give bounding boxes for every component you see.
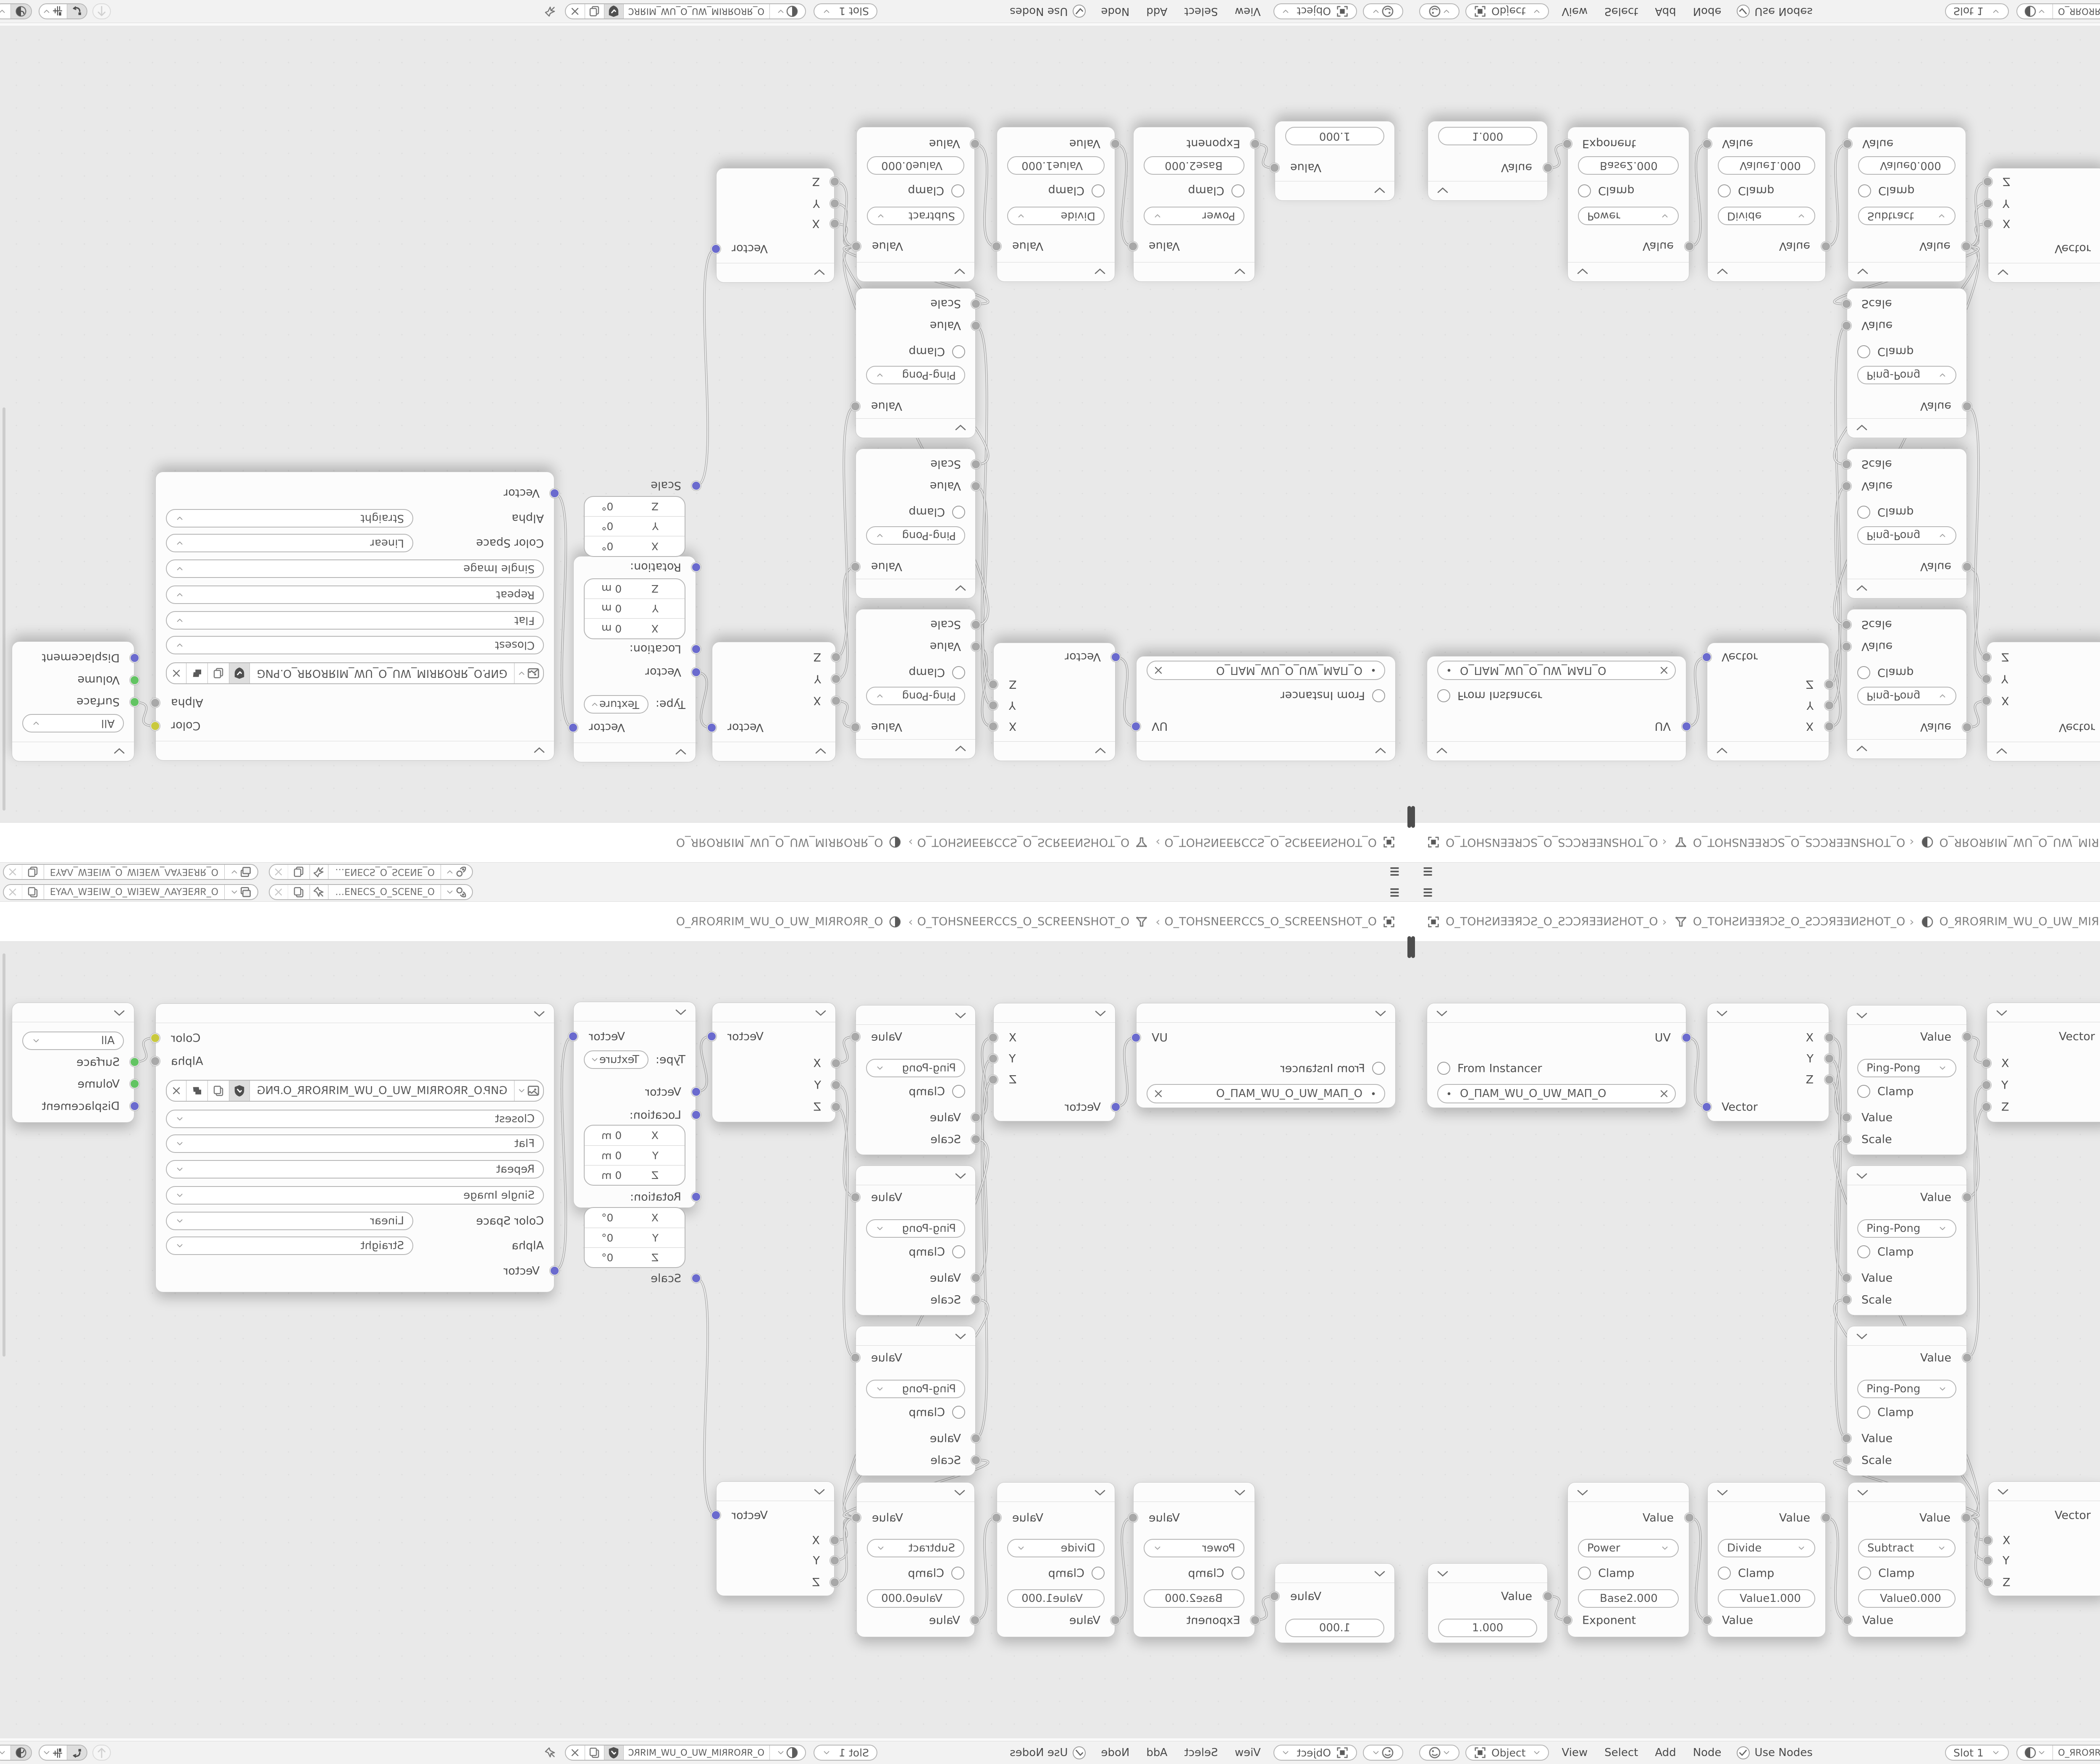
number-field[interactable]: 1.000: [1285, 127, 1384, 145]
x-input-socket[interactable]: [1982, 1058, 1991, 1068]
snap-parent-button[interactable]: [92, 1745, 111, 1761]
scrollbar-nub[interactable]: [1411, 936, 1415, 958]
node-header[interactable]: [1707, 741, 1829, 761]
math-power-node[interactable]: ValuePowerClampBase2.000Exponent: [1567, 1482, 1689, 1637]
fake-user-button[interactable]: [229, 1081, 250, 1101]
x-input-socket[interactable]: [830, 1536, 840, 1545]
checkbox-clamp[interactable]: [952, 345, 965, 358]
collapse-chevron-icon[interactable]: [954, 422, 967, 431]
material-name[interactable]: O_ЯROЯRIM_WU_O_UW_MIЯROЯR_O: [624, 1746, 770, 1760]
divide-dropdown[interactable]: Divide: [1007, 207, 1105, 225]
breadcrumb-item-2[interactable]: O_ЯROЯRIM_WU_O_UW_MIЯROЯR_O: [676, 836, 883, 849]
vector-input-socket[interactable]: [691, 1087, 701, 1097]
ping-pong-dropdown[interactable]: Ping-Pong: [1857, 366, 1956, 384]
menu-select[interactable]: Select: [1184, 1746, 1218, 1759]
collapse-chevron-icon[interactable]: [1373, 1570, 1386, 1579]
vector-fields[interactable]: X0°Y0°Z0°: [584, 496, 685, 557]
menu-view[interactable]: View: [1235, 5, 1261, 18]
clear-button[interactable]: [1653, 661, 1675, 679]
scale-input-socket[interactable]: [971, 1455, 981, 1465]
collapse-chevron-icon[interactable]: [954, 1172, 967, 1181]
value-output-socket[interactable]: [850, 1353, 860, 1362]
node-header[interactable]: [1847, 739, 1966, 759]
vector-field-row[interactable]: Z0 m: [585, 1165, 685, 1185]
z-input-socket[interactable]: [1983, 177, 1992, 186]
ping-pong-dropdown[interactable]: Ping-Pong: [1857, 1059, 1956, 1077]
value-input-socket[interactable]: [971, 481, 981, 491]
exponent-input-socket[interactable]: [1562, 1615, 1572, 1625]
pin-icon[interactable]: [544, 5, 556, 18]
viewlayer-name[interactable]: O_ЯRƎEYAΛ_WƎEIW_O_WIƎEW_ΛAYƎER_O: [44, 865, 225, 879]
hamburger-icon[interactable]: [1387, 864, 1401, 879]
vector-input-socket[interactable]: [1111, 652, 1121, 662]
colorspace-dropdown[interactable]: Linear: [166, 1212, 413, 1230]
ping-pong-dropdown[interactable]: Ping-Pong: [866, 687, 965, 705]
value-input-socket[interactable]: [970, 139, 980, 149]
node-header[interactable]: [1275, 181, 1394, 200]
value-output-socket[interactable]: [850, 1192, 860, 1202]
use-nodes-check-circle[interactable]: [1737, 5, 1750, 18]
ping-pong-dropdown[interactable]: Ping-Pong: [866, 1219, 965, 1238]
x-input-socket[interactable]: [830, 219, 840, 228]
collapse-chevron-icon[interactable]: [1995, 745, 2008, 755]
scene-copy-button[interactable]: [288, 885, 310, 899]
z-input-socket[interactable]: [1982, 1102, 1991, 1112]
volume-input-socket[interactable]: [130, 675, 139, 685]
snap-toggle-button[interactable]: [67, 4, 87, 18]
math-power-node[interactable]: ValuePowerClampBase2.000Exponent: [1133, 1482, 1255, 1637]
scene-pin-button[interactable]: [310, 885, 328, 899]
math-subtract-node[interactable]: ValueSubtractClampValue0.000Value: [856, 127, 975, 282]
type-dropdown[interactable]: Texture: [584, 695, 648, 714]
editor-type-button[interactable]: [1419, 1745, 1459, 1761]
flat-dropdown[interactable]: Flat: [166, 611, 544, 630]
value-output-socket[interactable]: [992, 1513, 1001, 1522]
material-datablock[interactable]: O_ЯROЯRIM_WU_O_UW_MIЯROЯR_O: [565, 1745, 806, 1761]
collapse-chevron-icon[interactable]: [954, 743, 967, 752]
use-nodes-checkbox[interactable]: Use Nodes: [1737, 5, 1813, 18]
closest-dropdown[interactable]: Closest: [166, 1110, 544, 1128]
vector-fields[interactable]: X0 mY0 mZ0 m: [584, 1125, 685, 1186]
math-ping-pong-1-node[interactable]: ValuePing-PongClampValueScale: [1847, 609, 1967, 759]
collapse-chevron-icon[interactable]: [1997, 1488, 2009, 1497]
image-datablock-field[interactable]: GИP.O_ЯROЯRIM_WU_O_UW_MIЯROЯR_O.PNG: [166, 662, 544, 684]
value-input-socket[interactable]: [1842, 481, 1851, 491]
slot-dropdown[interactable]: Slot 1: [814, 1745, 877, 1761]
snap-toggle-button[interactable]: [67, 1746, 87, 1760]
node-header[interactable]: [856, 1005, 975, 1025]
material-icon-button[interactable]: [770, 1746, 805, 1760]
scene-copy-button[interactable]: [288, 865, 310, 879]
editor-type-button[interactable]: [1419, 3, 1459, 19]
number-field[interactable]: Value1.000: [1007, 156, 1105, 175]
separate-xyz-node[interactable]: XYZVector: [993, 643, 1116, 761]
collapse-chevron-icon[interactable]: [1716, 1010, 1728, 1019]
node-header[interactable]: [857, 1483, 974, 1502]
vector-output-socket[interactable]: [568, 723, 578, 732]
divide-dropdown[interactable]: Divide: [1718, 207, 1815, 225]
math-subtract-node[interactable]: ValueSubtractClampValue0.000Value: [856, 1482, 975, 1637]
node-header[interactable]: [12, 742, 134, 761]
mode-dropdown[interactable]: Object: [1273, 1745, 1357, 1761]
checkbox-clamp[interactable]: [1858, 1567, 1871, 1580]
image-browse-button[interactable]: [514, 663, 543, 683]
checkbox-clamp[interactable]: [951, 184, 964, 197]
scene-icon-button[interactable]: [441, 885, 472, 899]
material-fake-user-button[interactable]: [604, 1746, 624, 1760]
collapse-chevron-icon[interactable]: [813, 267, 826, 276]
node-header[interactable]: [156, 741, 554, 760]
single-image-dropdown[interactable]: Single Image: [166, 1186, 544, 1205]
snap-group[interactable]: [39, 1745, 87, 1761]
value-output-socket[interactable]: [1543, 1591, 1553, 1601]
collapse-chevron-icon[interactable]: [1856, 583, 1868, 592]
checkbox-clamp[interactable]: [1578, 184, 1591, 197]
vector-input-socket[interactable]: [691, 667, 701, 677]
math-ping-pong-3-node[interactable]: ValuePing-PongClampValueScale: [856, 1326, 976, 1476]
material-name[interactable]: O_ЯROЯRIM_WU_O_UW_MIЯROЯR_O: [624, 4, 770, 18]
collapse-chevron-icon[interactable]: [533, 745, 546, 754]
collapse-chevron-icon[interactable]: [954, 583, 967, 592]
surface-input-socket[interactable]: [130, 697, 139, 707]
material-datablock[interactable]: O_ЯROЯRIM_WU_O_UW_MIЯROЯR_O: [565, 3, 806, 19]
scene-selector[interactable]: O_ƎИƎƆƧ_O_ƧƆƎИƎ…: [269, 884, 473, 900]
collapse-chevron-icon[interactable]: [953, 1489, 966, 1498]
z-input-socket[interactable]: [831, 1102, 841, 1112]
value-output-socket[interactable]: [1962, 1032, 1972, 1042]
number-field[interactable]: Value1.000: [1718, 156, 1815, 175]
node-header[interactable]: [1848, 1483, 1966, 1502]
y-input-socket[interactable]: [830, 1556, 840, 1565]
vector-field-row[interactable]: X0°: [585, 1208, 685, 1228]
material-name[interactable]: O_ЯROЯRIM_WU_O_UW_MIЯROЯR_O: [2053, 1746, 2100, 1760]
scale-input-socket[interactable]: [971, 1134, 981, 1144]
collapse-chevron-icon[interactable]: [1234, 266, 1246, 275]
menu-add[interactable]: Add: [1146, 5, 1167, 18]
collapse-chevron-icon[interactable]: [1716, 266, 1729, 275]
rotation-input-socket[interactable]: [691, 1192, 701, 1202]
math-ping-pong-2-node[interactable]: ValuePing-PongClampValueScale: [1847, 449, 1967, 598]
combine-xyz-1-node[interactable]: VectorXYZ: [1987, 642, 2100, 761]
viewlayer-pill[interactable]: O_ЯRƎEYAΛ_WƎEIW_O_WIƎEW_ΛAYƎER_O: [3, 864, 258, 880]
node-header[interactable]: [1987, 1003, 2100, 1022]
uv-map-name[interactable]: O_ПAM_WU_O_UW_MAП_O: [1169, 1085, 1362, 1102]
ping-pong-dropdown[interactable]: Ping-Pong: [866, 1380, 965, 1398]
breadcrumb-item-1[interactable]: O_TOHƧИƎƎЯƆƧ_O_ƧƆƆЯƎƎИƧHOT_O: [917, 915, 1130, 928]
hamburger-icon[interactable]: [1387, 864, 1401, 879]
x-input-socket[interactable]: [831, 1058, 841, 1068]
value-output-socket[interactable]: [850, 562, 860, 572]
menu-add[interactable]: Add: [1655, 1746, 1676, 1759]
node-header[interactable]: [856, 1166, 975, 1185]
collapse-chevron-icon[interactable]: [533, 1010, 546, 1019]
collapse-chevron-icon[interactable]: [1856, 1172, 1868, 1181]
menu-add[interactable]: Add: [1655, 5, 1676, 18]
x-input-socket[interactable]: [1983, 219, 1992, 228]
canvas-scrollbar[interactable]: [3, 407, 5, 811]
mode-dropdown[interactable]: Object: [1273, 3, 1357, 19]
scene-pill[interactable]: O_ƎИƎƆƧ_O_ƧƆƎИƎ…: [269, 864, 473, 880]
vector-output-socket[interactable]: [711, 244, 721, 254]
value-output-socket[interactable]: [1685, 1513, 1694, 1522]
menu-view[interactable]: View: [1562, 5, 1588, 18]
exponent-input-socket[interactable]: [1562, 139, 1572, 149]
subtract-dropdown[interactable]: Subtract: [867, 1539, 964, 1557]
unlink-button[interactable]: [167, 663, 186, 683]
use-nodes-checkbox[interactable]: Use Nodes: [1010, 1746, 1086, 1759]
uv-map-name[interactable]: O_ПAM_WU_O_UW_MAП_O: [1460, 661, 1653, 679]
collapse-chevron-icon[interactable]: [1436, 745, 1448, 754]
canvas-scrollbar[interactable]: [3, 953, 5, 1357]
breadcrumb-item-0[interactable]: O_TOHƧИƎƎЯƆƧ_O_ƧƆƆЯƎƎИƧHOT_O: [1164, 915, 1377, 928]
value-input-socket[interactable]: [1702, 139, 1712, 149]
material-unlink-button[interactable]: [566, 4, 585, 18]
alpha-dropdown[interactable]: Straight: [166, 509, 413, 528]
value-output-socket[interactable]: [1962, 402, 1972, 411]
value-node[interactable]: Value1.000: [1428, 1563, 1548, 1643]
collapse-chevron-icon[interactable]: [954, 1012, 967, 1021]
checkbox-clamp[interactable]: [1092, 1567, 1105, 1580]
collapse-chevron-icon[interactable]: [1856, 1333, 1868, 1342]
hamburger-icon[interactable]: [1387, 885, 1401, 900]
node-header[interactable]: [857, 262, 974, 281]
ping-pong-dropdown[interactable]: Ping-Pong: [866, 1059, 965, 1077]
z-output-socket[interactable]: [1824, 680, 1834, 689]
collapse-chevron-icon[interactable]: [1094, 266, 1106, 275]
material-unlink-button[interactable]: [566, 1746, 585, 1760]
z-output-socket[interactable]: [988, 1075, 998, 1084]
subtract-dropdown[interactable]: Subtract: [867, 207, 964, 225]
repeat-dropdown[interactable]: Repeat: [166, 1160, 544, 1179]
breadcrumb-item-1[interactable]: O_TOHƧИƎƎЯƆƧ_O_ƧƆƆЯƎƎИƧHOT_O: [917, 836, 1130, 849]
slot-dropdown[interactable]: Slot 1: [1945, 3, 2009, 19]
scene-pill[interactable]: O_ƎИƎƆƧ_O_ƧƆƎИƎ…: [269, 884, 473, 900]
checkbox-clamp[interactable]: [952, 666, 965, 679]
breadcrumb-item-2[interactable]: O_ЯROЯRIM_WU_O_UW_MIЯROЯR_O: [1939, 915, 2100, 928]
math-ping-pong-3-node[interactable]: ValuePing-PongClampValueScale: [856, 288, 976, 438]
collapse-chevron-icon[interactable]: [113, 745, 126, 755]
checkbox-clamp[interactable]: [1231, 184, 1244, 197]
snap-mode-dropdown[interactable]: [39, 1746, 67, 1760]
overlay-dropdown[interactable]: [0, 1746, 11, 1760]
pin-icon[interactable]: [544, 1746, 556, 1759]
menu-node[interactable]: Node: [1101, 5, 1129, 18]
scale-input-socket[interactable]: [1842, 620, 1851, 630]
y-input-socket[interactable]: [830, 199, 840, 208]
power-dropdown[interactable]: Power: [1144, 1539, 1244, 1557]
checkbox-clamp[interactable]: [1857, 1406, 1870, 1419]
checkbox-clamp[interactable]: [1857, 345, 1870, 358]
clear-button[interactable]: [1147, 661, 1169, 679]
y-input-socket[interactable]: [831, 1080, 841, 1090]
value-input-socket[interactable]: [971, 1273, 981, 1283]
number-field[interactable]: Value0.000: [867, 1589, 964, 1608]
use-nodes-checkbox[interactable]: Use Nodes: [1737, 1746, 1813, 1759]
math-ping-pong-3-node[interactable]: ValuePing-PongClampValueScale: [1847, 288, 1967, 438]
hamburger-icon[interactable]: [1421, 864, 1436, 879]
separate-xyz-node[interactable]: XYZVector: [1707, 643, 1829, 761]
material-icon-button[interactable]: [770, 4, 805, 18]
checkbox-clamp[interactable]: [1718, 1567, 1731, 1580]
hamburger-icon[interactable]: [1421, 885, 1436, 900]
combine-xyz-2-node[interactable]: VectorXYZ: [716, 1481, 835, 1596]
value-output-socket[interactable]: [1270, 1591, 1279, 1601]
mapping-node[interactable]: VectorType:TextureVectorLocation:X0 mY0 …: [573, 556, 696, 762]
hamburger-icon[interactable]: [1421, 864, 1436, 879]
material-name[interactable]: O_ЯROЯRIM_WU_O_UW_MIЯROЯR_O: [2053, 4, 2100, 18]
math-subtract-node[interactable]: ValueSubtractClampValue0.000Value: [1848, 1482, 1966, 1637]
value-input-socket[interactable]: [1842, 1273, 1851, 1283]
material-fake-user-button[interactable]: [604, 4, 624, 18]
vector-field-row[interactable]: X0 m: [585, 619, 685, 638]
collapse-chevron-icon[interactable]: [1094, 1010, 1107, 1019]
node-header[interactable]: [1847, 1005, 1966, 1025]
node-header[interactable]: [717, 263, 834, 282]
checkbox-clamp[interactable]: [1231, 1567, 1244, 1580]
combine-xyz-1-node[interactable]: VectorXYZ: [1987, 1003, 2100, 1122]
image-name[interactable]: GИP.O_ЯROЯRIM_WU_O_UW_MIЯROЯR_O.PNG: [250, 1081, 515, 1101]
number-field[interactable]: Value1.000: [1007, 1589, 1105, 1608]
checkbox-clamp[interactable]: [952, 1406, 965, 1419]
node-header[interactable]: [574, 1002, 696, 1021]
checkbox-clamp[interactable]: [952, 1085, 965, 1098]
menu-select[interactable]: Select: [1604, 1746, 1638, 1759]
number-field[interactable]: Base2.000: [1578, 156, 1679, 175]
unlink-button[interactable]: [167, 1081, 186, 1101]
value-input-socket[interactable]: [971, 321, 981, 331]
uv-output-socket[interactable]: [1682, 1033, 1691, 1042]
uv-map-field[interactable]: O_ПAM_WU_O_UW_MAП_O: [1437, 661, 1676, 680]
scale-input-socket[interactable]: [1842, 299, 1851, 309]
mapping-node[interactable]: VectorType:TextureVectorLocation:X0 mY0 …: [573, 1002, 696, 1208]
displacement-input-socket[interactable]: [130, 653, 139, 663]
vector-input-socket[interactable]: [1111, 1102, 1121, 1112]
x-output-socket[interactable]: [1824, 722, 1834, 731]
vector-field-row[interactable]: X0°: [585, 536, 685, 556]
collapse-chevron-icon[interactable]: [675, 1008, 687, 1018]
collapse-chevron-icon[interactable]: [1995, 1009, 2008, 1018]
collapse-chevron-icon[interactable]: [1856, 743, 1868, 752]
overlay-toggle-button[interactable]: [11, 1746, 31, 1760]
x-input-socket[interactable]: [1982, 696, 1991, 706]
scale-input-socket[interactable]: [971, 620, 981, 630]
vector-input-socket[interactable]: [1702, 1102, 1711, 1112]
clear-button[interactable]: [1147, 1085, 1169, 1102]
node-header[interactable]: [1427, 1003, 1686, 1023]
breadcrumb-item-2[interactable]: O_ЯROЯRIM_WU_O_UW_MIЯROЯR_O: [676, 915, 883, 928]
value-output-socket[interactable]: [1821, 241, 1831, 251]
scale-input-socket[interactable]: [971, 1295, 981, 1305]
y-output-socket[interactable]: [988, 701, 998, 710]
vector-field-row[interactable]: Y0°: [585, 517, 685, 536]
node-header[interactable]: [997, 1483, 1115, 1502]
viewlayer-unlink-button[interactable]: [4, 885, 22, 899]
z-input-socket[interactable]: [831, 652, 841, 662]
x-output-socket[interactable]: [988, 722, 998, 731]
value-input-socket[interactable]: [1842, 1113, 1851, 1122]
single-image-dropdown[interactable]: Single Image: [166, 559, 544, 578]
node-header[interactable]: [1708, 1483, 1825, 1502]
combine-xyz-2-node[interactable]: VectorXYZ: [1988, 168, 2100, 283]
use-nodes-checkbox[interactable]: Use Nodes: [1010, 5, 1086, 18]
collapse-chevron-icon[interactable]: [1094, 745, 1107, 754]
x-output-socket[interactable]: [988, 1033, 998, 1042]
vector-field-row[interactable]: Y0°: [585, 1228, 685, 1247]
flat-dropdown[interactable]: Flat: [166, 1134, 544, 1153]
math-divide-node[interactable]: ValueDivideClampValue1.000Value: [1707, 1482, 1826, 1637]
value-input-socket[interactable]: [1842, 1433, 1851, 1443]
copy-button[interactable]: [208, 663, 229, 683]
value-input-socket[interactable]: [1843, 1615, 1852, 1625]
breadcrumb-item-1[interactable]: O_TOHƧИƎƎЯƆƧ_O_ƧƆƆЯƎƎИƧHOT_O: [1693, 836, 1906, 849]
checkbox-clamp[interactable]: [1718, 184, 1731, 197]
vector-field-row[interactable]: Y0 m: [585, 1145, 685, 1165]
scale-input-socket[interactable]: [1842, 1455, 1851, 1465]
node-header[interactable]: [1987, 742, 2100, 761]
value-output-socket[interactable]: [1543, 163, 1553, 173]
checkbox-clamp[interactable]: [1857, 666, 1870, 679]
math-ping-pong-2-node[interactable]: ValuePing-PongClampValueScale: [856, 449, 976, 598]
number-field[interactable]: 1.000: [1438, 1619, 1537, 1637]
collapse-chevron-icon[interactable]: [1436, 1010, 1448, 1019]
collapse-chevron-icon[interactable]: [813, 1488, 826, 1497]
node-header[interactable]: [712, 742, 835, 761]
checkbox-clamp[interactable]: [1578, 1567, 1591, 1580]
surface-input-socket[interactable]: [130, 1057, 139, 1067]
math-subtract-node[interactable]: ValueSubtractClampValue0.000Value: [1848, 127, 1966, 282]
number-field[interactable]: Value0.000: [1858, 1589, 1956, 1608]
y-input-socket[interactable]: [1982, 674, 1991, 684]
x-output-socket[interactable]: [1824, 1033, 1834, 1042]
node-header[interactable]: [1847, 579, 1966, 598]
hamburger-icon[interactable]: [1387, 885, 1401, 900]
value-output-socket[interactable]: [1128, 241, 1138, 251]
collapse-chevron-icon[interactable]: [1374, 1010, 1387, 1019]
uv-output-socket[interactable]: [1131, 722, 1141, 731]
alpha-output-socket[interactable]: [150, 698, 160, 708]
vector-field-row[interactable]: X0 m: [585, 1126, 685, 1145]
uv-output-socket[interactable]: [1131, 1033, 1141, 1042]
ping-pong-dropdown[interactable]: Ping-Pong: [1857, 687, 1956, 705]
scene-unlink-button[interactable]: [270, 885, 288, 899]
breadcrumb-item-0[interactable]: O_TOHƧИƎƎЯƆƧ_O_ƧƆƆЯƎƎИƧHOT_O: [1446, 915, 1658, 928]
node-header[interactable]: [856, 739, 975, 759]
checkbox-clamp[interactable]: [1858, 184, 1871, 197]
ping-pong-dropdown[interactable]: Ping-Pong: [866, 366, 965, 384]
snap-mode-dropdown[interactable]: [39, 4, 67, 18]
value-output-socket[interactable]: [1685, 241, 1694, 251]
z-input-socket[interactable]: [1983, 1578, 1992, 1587]
menu-node[interactable]: Node: [1693, 1746, 1722, 1759]
vector-output-socket[interactable]: [711, 1510, 721, 1520]
type-dropdown[interactable]: Texture: [584, 1050, 648, 1069]
power-dropdown[interactable]: Power: [1144, 207, 1244, 225]
all-dropdown[interactable]: All: [22, 714, 124, 732]
collapse-chevron-icon[interactable]: [675, 746, 687, 756]
value-input-socket[interactable]: [1843, 139, 1852, 149]
repeat-dropdown[interactable]: Repeat: [166, 585, 544, 604]
value-input-socket[interactable]: [1110, 139, 1120, 149]
combine-xyz-2-node[interactable]: VectorXYZ: [1988, 1481, 2100, 1596]
y-input-socket[interactable]: [1983, 199, 1992, 208]
math-power-node[interactable]: ValuePowerClampBase2.000Exponent: [1133, 127, 1255, 282]
uv-map-node[interactable]: UVFrom InstancerO_ПAM_WU_O_UW_MAП_O: [1427, 1003, 1686, 1108]
breadcrumb-item-1[interactable]: O_TOHƧИƎƎЯƆƧ_O_ƧƆƆЯƎƎИƧHOT_O: [1693, 915, 1906, 928]
value-node[interactable]: Value1.000: [1428, 121, 1548, 201]
color-output-socket[interactable]: [150, 1033, 160, 1043]
node-header[interactable]: [1848, 262, 1966, 281]
value-output-socket[interactable]: [851, 241, 861, 251]
